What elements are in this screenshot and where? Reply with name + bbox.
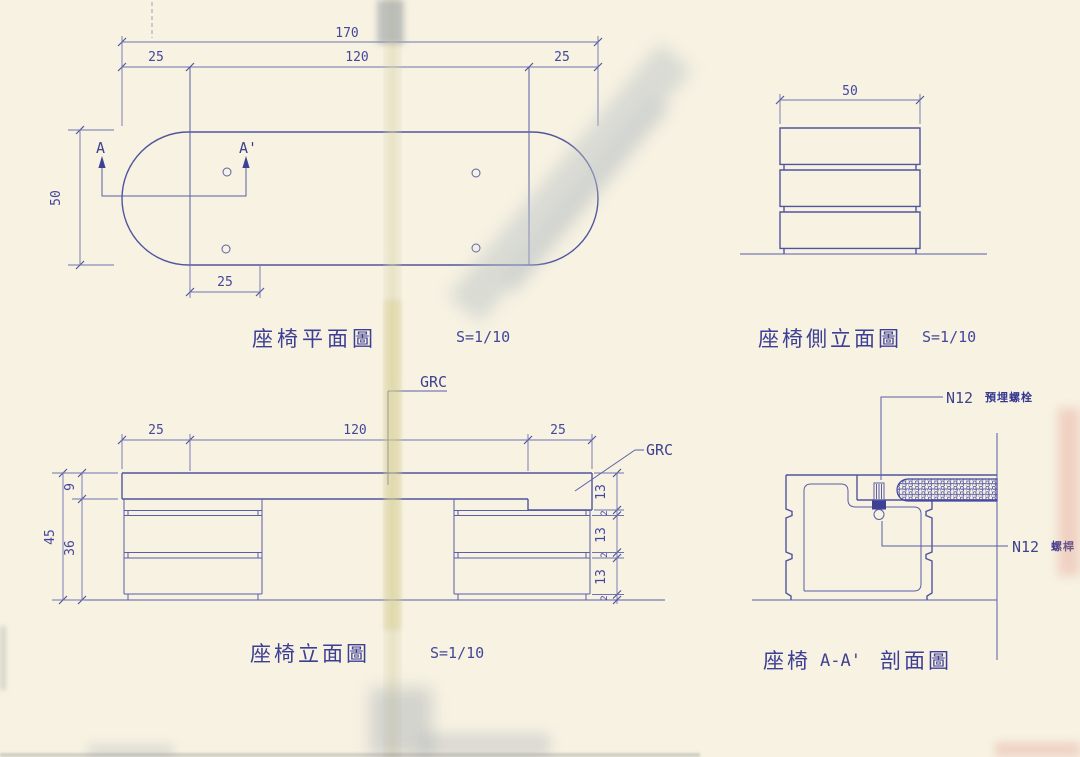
section-anchor-bolt <box>872 483 886 520</box>
section-title: 座椅 A-A' 剖面圖 <box>763 649 952 673</box>
plan-title: 座椅平面圖 <box>252 327 377 351</box>
anchor-bolt-name: 預埋螺栓 <box>985 390 1033 404</box>
grc-label-right: GRC <box>575 441 673 491</box>
svg-text:45: 45 <box>43 529 58 545</box>
plan-bolt-hole <box>472 169 480 177</box>
svg-text:座椅: 座椅 <box>763 649 811 673</box>
section-cut-line: A A' <box>96 139 257 196</box>
svg-text:9: 9 <box>63 483 78 491</box>
section-mark-a: A <box>96 139 105 157</box>
rod-name: 螺桿 <box>1051 539 1075 553</box>
side-elevation-dim-width: 50 <box>776 84 924 124</box>
section-view: N12 預埋螺栓 N12 螺桿 座椅 A-A' 剖面圖 <box>752 389 1075 673</box>
front-elevation-dim-segments: 25 120 25 <box>118 423 596 471</box>
side-elevation-scale: S=1/10 <box>922 328 976 346</box>
front-elevation-title: 座椅立面圖 <box>250 642 370 666</box>
front-elevation-seat-slab <box>122 473 592 510</box>
svg-text:50: 50 <box>842 84 858 99</box>
section-mark-a-prime: A' <box>239 139 257 157</box>
svg-text:120: 120 <box>343 423 366 438</box>
svg-text:GRC: GRC <box>420 373 447 391</box>
section-grc-slab <box>897 479 997 501</box>
drawing-canvas: A A' 170 25 120 25 50 <box>0 0 1080 757</box>
side-elevation-title: 座椅側立面圖 <box>758 327 902 351</box>
svg-text:36: 36 <box>63 540 78 556</box>
svg-text:120: 120 <box>345 50 368 65</box>
section-arrow-a-prime <box>242 156 249 168</box>
front-elevation-dim-heights: 45 9 36 <box>43 469 118 604</box>
svg-text:13: 13 <box>594 484 609 500</box>
front-elevation-left-pedestal <box>124 499 262 600</box>
front-elevation-right-pedestal <box>454 499 590 600</box>
front-elevation-scale: S=1/10 <box>430 644 484 662</box>
plan-bolt-hole <box>472 244 480 252</box>
svg-text:2: 2 <box>600 552 610 557</box>
plan-seat-outline <box>122 132 598 265</box>
svg-text:2: 2 <box>600 510 610 515</box>
plan-scale: S=1/10 <box>456 328 510 346</box>
grc-label-top: GRC <box>388 373 447 485</box>
side-elevation-blocks <box>780 128 920 254</box>
front-elevation-dim-blocks: 13 2 13 2 13 2 <box>592 469 624 604</box>
plan-view: A A' 170 25 120 25 50 <box>49 2 602 351</box>
anchor-bolt-callout: N12 預埋螺栓 <box>881 389 1033 480</box>
side-elevation-view: 50 座椅側立面圖 S=1/10 <box>740 84 987 351</box>
section-bolt-washer <box>874 510 884 520</box>
svg-text:170: 170 <box>335 26 358 41</box>
svg-text:2: 2 <box>600 595 610 600</box>
anchor-bolt-code: N12 <box>946 389 973 407</box>
svg-text:50: 50 <box>49 190 64 206</box>
svg-text:25: 25 <box>148 50 164 65</box>
svg-text:GRC: GRC <box>646 441 673 459</box>
svg-text:13: 13 <box>594 527 609 543</box>
svg-text:25: 25 <box>148 423 164 438</box>
drawing-sheet: A A' 170 25 120 25 50 <box>0 0 1080 757</box>
section-bolt-nut <box>872 501 886 510</box>
rod-callout: N12 螺桿 <box>882 521 1075 556</box>
plan-bolt-hole <box>222 245 230 253</box>
svg-text:25: 25 <box>550 423 566 438</box>
rod-code: N12 <box>1012 538 1039 556</box>
svg-text:25: 25 <box>217 275 233 290</box>
svg-text:25: 25 <box>554 50 570 65</box>
front-elevation-view: 25 120 25 45 9 36 <box>43 373 673 666</box>
svg-text:A-A': A-A' <box>820 651 861 671</box>
section-arrow-a <box>98 156 105 168</box>
plan-dim-total: 170 <box>118 26 602 46</box>
svg-text:剖面圖: 剖面圖 <box>880 649 952 673</box>
plan-bolt-hole <box>223 168 231 176</box>
plan-dim-pedestal-offset: 25 <box>186 266 264 298</box>
svg-text:13: 13 <box>594 569 609 585</box>
